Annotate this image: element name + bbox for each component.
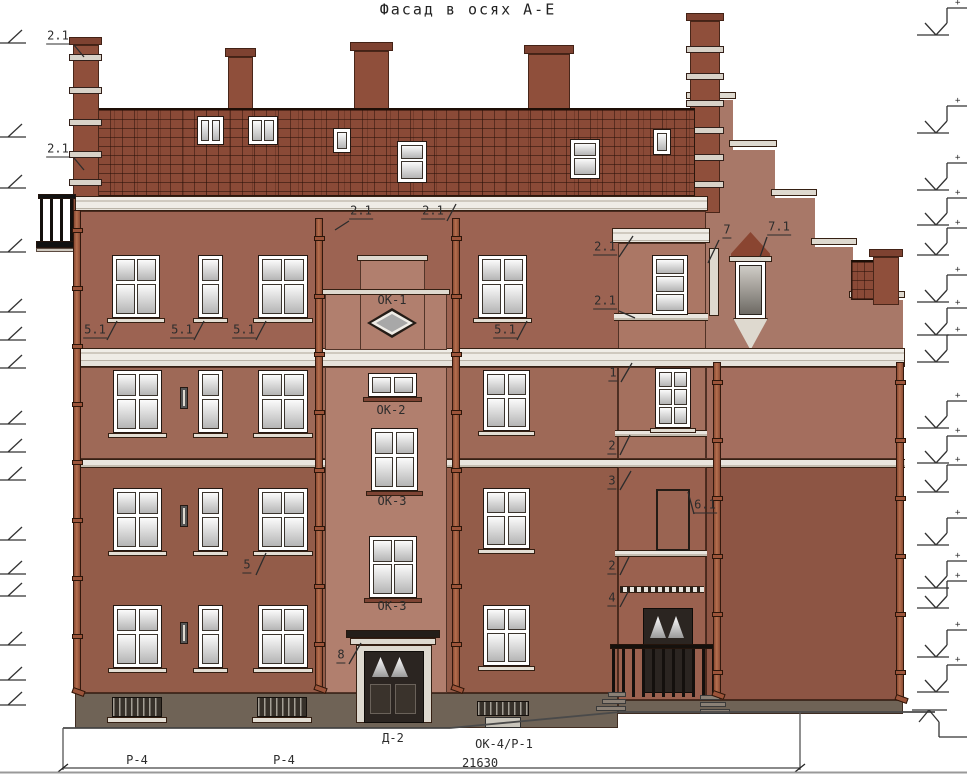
window-pane (482, 284, 501, 315)
window-pane (401, 161, 423, 179)
right-wall-lower (706, 467, 903, 700)
elevation-plus: + (955, 455, 961, 465)
window-pane (262, 634, 282, 665)
window-pane (202, 399, 219, 430)
mansard-roof (85, 108, 695, 196)
right-wall-upper (706, 367, 903, 459)
elevation-mark (917, 665, 967, 692)
window-pane (394, 377, 413, 393)
window-pane (139, 634, 158, 665)
pinnacle-ring (686, 73, 724, 80)
eaves-cornice (75, 196, 708, 211)
window-pane (139, 374, 158, 396)
elevation-mark (917, 465, 967, 492)
basement-grille (257, 697, 307, 717)
elevation-mark (0, 124, 26, 137)
part-label: Д-2 (382, 732, 404, 744)
dimension-tick (58, 764, 805, 772)
stair-step (700, 709, 730, 714)
window-pane (508, 398, 526, 427)
window-pane (396, 432, 414, 454)
downpipe (73, 210, 81, 693)
window-pane (487, 633, 505, 662)
basement-window-ok4 (477, 701, 529, 716)
window-pane (264, 120, 274, 141)
window (113, 370, 162, 433)
elevation-plus: + (955, 508, 961, 518)
callout-label: 8 (336, 649, 345, 664)
downpipe-collar (314, 236, 325, 241)
window-pane (487, 516, 505, 545)
downpipe-collar (451, 468, 462, 473)
window-sill (253, 668, 313, 673)
window-pane (508, 633, 526, 662)
gable-shingle-patch (851, 260, 875, 300)
callout-label: 7 (722, 224, 731, 239)
downpipe-collar (314, 642, 325, 647)
window-pane (394, 540, 413, 562)
main-cornice (75, 348, 905, 367)
elevation-plus: + (955, 96, 961, 106)
downpipe-collar (314, 294, 325, 299)
part-label: Р-4 (273, 754, 295, 766)
elevation-mark (917, 436, 967, 463)
elevation-mark (917, 198, 967, 225)
downpipe-collar (451, 352, 462, 357)
elevation-mark-up (912, 710, 967, 737)
window-pane (262, 284, 282, 315)
elevation-mark (917, 275, 967, 302)
balcony-balusters (40, 199, 74, 241)
elevation-mark (917, 335, 967, 362)
dormer-window (197, 116, 224, 145)
window (198, 605, 223, 668)
left-pinnacle (73, 45, 99, 211)
window-pane (504, 284, 523, 315)
elevation-mark (0, 439, 26, 452)
chimney-cap (524, 45, 574, 54)
window-pane (139, 492, 158, 514)
pinnacle-ring (69, 151, 102, 158)
window (258, 488, 308, 551)
window-pane (284, 284, 304, 315)
downpipe-collar (895, 670, 906, 675)
downpipe-collar (72, 344, 83, 349)
elevation-plus: + (955, 426, 961, 436)
callout-label: 2.1 (421, 205, 445, 220)
window-pane (262, 374, 282, 396)
elevation-mark (917, 228, 967, 255)
window-pane (574, 143, 596, 156)
elevation-plus: + (955, 265, 961, 275)
stair-step (608, 692, 626, 697)
left-pinnacle-cap (69, 37, 102, 45)
window-sill (478, 549, 535, 554)
window-pane (284, 259, 304, 281)
window-sill (363, 397, 422, 402)
window-sill (107, 318, 165, 323)
chimney-cap (225, 48, 256, 57)
dormer-window (248, 116, 278, 145)
downpipe-collar (314, 352, 325, 357)
window-pane (262, 399, 282, 430)
window-pane (201, 120, 209, 141)
elevation-mark (917, 518, 967, 545)
balcony-door (656, 489, 690, 551)
window-sill (193, 668, 228, 673)
elevation-plus: + (955, 655, 961, 665)
grille-sill (252, 717, 312, 723)
callout-label: 2 (607, 440, 616, 455)
window-sill (193, 433, 228, 438)
window-pane (674, 389, 687, 405)
downpipe-collar (72, 228, 83, 233)
part-label: ОК-1 (378, 294, 407, 306)
downpipe-collar (314, 468, 325, 473)
downpipe-collar (451, 584, 462, 589)
window-pane (117, 374, 136, 396)
window-pane (487, 609, 505, 630)
elevation-mark (917, 581, 967, 608)
window-pane (139, 517, 158, 548)
window-pane (284, 492, 304, 514)
callout-label: 2.1 (46, 143, 70, 158)
dimension-text: 21630 (462, 757, 498, 769)
downpipe-collar (451, 410, 462, 415)
window-pane (284, 399, 304, 430)
elevation-mark (0, 327, 26, 340)
window-pane (401, 145, 423, 159)
window-pane (202, 517, 219, 548)
callout-label: 2.1 (593, 295, 617, 310)
window-pane (508, 609, 526, 630)
elevation-plus: + (955, 551, 961, 561)
window-pane (202, 259, 219, 281)
window (483, 605, 530, 666)
part-label: ОК-2 (377, 404, 406, 416)
gable-chimney (873, 257, 899, 305)
callout-label: 2 (607, 560, 616, 575)
pinnacle-ring (69, 54, 102, 61)
elevation-mark (0, 467, 26, 480)
downpipe-collar (712, 438, 723, 443)
pinnacle-ring (69, 119, 102, 126)
bay-side-return (709, 248, 719, 316)
downpipe-collar (712, 554, 723, 559)
downpipe-collar (895, 612, 906, 617)
pinnacle-ring (69, 87, 102, 94)
chimney (354, 51, 389, 110)
window-pane (337, 132, 347, 149)
elevation-mark (0, 583, 26, 596)
window-pane (202, 492, 219, 514)
window-sill (108, 433, 167, 438)
window-pane (674, 372, 687, 387)
window (258, 605, 308, 668)
window-sill (253, 433, 313, 438)
callout-label: 7.1 (767, 221, 791, 236)
gable-chimney-cap (869, 249, 903, 257)
oriel-glass (739, 265, 762, 315)
window-sill (193, 318, 228, 323)
downpipe-collar (451, 526, 462, 531)
downpipe-collar (72, 634, 83, 639)
window-pane (284, 634, 304, 665)
part-label: ОК-3 (378, 495, 407, 507)
plinth-right (618, 700, 903, 714)
bay-window (652, 255, 688, 315)
pinnacle-ring (686, 46, 724, 53)
basement-grille (112, 697, 162, 717)
callout-label: 1 (608, 367, 617, 382)
window-sill (108, 551, 167, 556)
window-pane (508, 374, 526, 395)
elevation-mark (917, 561, 967, 588)
callout-label: 4 (607, 592, 616, 607)
balcony-sill (615, 550, 707, 557)
window-pane (117, 399, 136, 430)
window-pane (252, 120, 262, 141)
window-pane (116, 259, 135, 281)
window-pane (487, 374, 505, 395)
balcony-slab (36, 248, 78, 252)
window-pane (202, 284, 219, 315)
portal-architrave (350, 638, 436, 645)
window-sill (253, 551, 313, 556)
window-pane (487, 492, 505, 513)
page-title: Фасад в осях А-Е (380, 3, 557, 18)
part-label: ОК-3 (378, 600, 407, 612)
window-sill (108, 668, 167, 673)
window-pane (659, 407, 672, 424)
elevation-plus: + (955, 325, 961, 335)
elevation-mark (917, 106, 967, 133)
pinnacle-ring (69, 179, 102, 186)
facade-drawing: Фасад в осях А-Е ++++++++++++++++2.12.12… (0, 0, 967, 775)
part-label: ОК-4/Р-1 (475, 738, 533, 750)
callout-label: 5.1 (232, 324, 256, 339)
pinnacle-ring (686, 100, 724, 107)
chimney (228, 57, 253, 110)
window-pane (656, 294, 684, 311)
bay-top-cornice (612, 228, 710, 243)
window (478, 255, 527, 318)
downpipe-collar (72, 518, 83, 523)
callout-label: 5.1 (83, 324, 107, 339)
door-panel (370, 684, 391, 714)
window-pane (137, 259, 156, 281)
window-pane (137, 284, 156, 315)
portal-head (346, 630, 440, 638)
elevation-plus: + (955, 391, 961, 401)
elevation-mark (0, 355, 26, 368)
window-pane (284, 374, 304, 396)
window-ok2 (368, 373, 417, 397)
gable-step-coping (729, 140, 777, 147)
window-pane (373, 564, 392, 594)
downpipe-collar (895, 438, 906, 443)
gable-step-coping (771, 189, 817, 196)
elevation-mark (0, 411, 26, 424)
bay-window (655, 368, 691, 428)
window-pane (482, 259, 501, 281)
window-pane (375, 457, 393, 488)
callout-label: 6.1 (693, 499, 717, 514)
downpipe-collar (712, 670, 723, 675)
window (258, 255, 308, 318)
window-pane (139, 609, 158, 631)
window (198, 370, 223, 433)
window-pane (262, 492, 282, 514)
downpipe (713, 362, 721, 696)
window-pane (284, 517, 304, 548)
callout-label: 2.1 (349, 205, 373, 220)
right-pinnacle-cap (686, 13, 724, 21)
window (112, 255, 160, 318)
window-pane (117, 609, 136, 631)
elevation-mark (917, 308, 967, 335)
dormer-window (570, 139, 600, 179)
window-pane (117, 492, 136, 514)
string-course (75, 459, 325, 468)
elevation-mark (917, 163, 967, 190)
downpipe-collar (451, 294, 462, 299)
window-sill (253, 318, 313, 323)
window-pane (656, 259, 684, 274)
dentil-band (620, 586, 704, 593)
callout-label: 2.1 (593, 241, 617, 256)
callout-label: 5.1 (493, 324, 517, 339)
elevation-mark (917, 401, 967, 428)
window-ok3 (371, 428, 418, 491)
window-pane (117, 517, 136, 548)
window-pane (116, 284, 135, 315)
downpipe-collar (72, 576, 83, 581)
window (483, 370, 530, 431)
window-pane (659, 389, 672, 405)
dormer-window (333, 128, 351, 153)
oriel-window (735, 261, 766, 319)
elevation-plus: + (955, 0, 961, 8)
elevation-mark (0, 561, 26, 574)
elevation-plus: + (955, 188, 961, 198)
window-pane (504, 259, 523, 281)
balcony-base (36, 241, 78, 248)
window (198, 255, 223, 318)
downpipe-collar (895, 554, 906, 559)
window-pane (659, 372, 672, 387)
window-pane (202, 634, 219, 665)
wall-slit (180, 505, 188, 527)
window-pane (674, 407, 687, 424)
window-pane (487, 398, 505, 427)
window-pane (373, 540, 392, 562)
window (113, 605, 162, 668)
window-pane (657, 133, 667, 151)
stair-step (596, 706, 626, 711)
downpipe (896, 362, 904, 700)
window-pane (262, 609, 282, 631)
elevation-plus: + (955, 620, 961, 630)
window-pane (372, 377, 391, 393)
elevation-plus: + (955, 218, 961, 228)
downpipe-collar (451, 642, 462, 647)
elevation-mark (917, 630, 967, 657)
dormer-window (653, 129, 671, 155)
wall-slit (180, 387, 188, 409)
downpipe-collar (72, 286, 83, 291)
window-sill (650, 428, 696, 433)
light-well (485, 717, 521, 728)
window-pane (202, 609, 219, 631)
chimney-cap (350, 42, 393, 51)
downpipe-collar (314, 410, 325, 415)
downpipe-collar (895, 380, 906, 385)
window-pane (574, 158, 596, 175)
window (258, 370, 308, 433)
downpipe (452, 218, 460, 690)
downpipe-collar (895, 496, 906, 501)
downpipe-collar (314, 584, 325, 589)
elevation-mark (0, 632, 26, 645)
window-pane (508, 516, 526, 545)
downpipe-collar (314, 526, 325, 531)
window-sill (193, 551, 228, 556)
downpipe-collar (712, 612, 723, 617)
elevation-plus: + (955, 571, 961, 581)
window-sill (478, 666, 535, 671)
window-pane (139, 399, 158, 430)
window-pane (394, 564, 413, 594)
downpipe (315, 218, 323, 690)
elevation-mark (0, 692, 26, 705)
elevation-plus: + (955, 298, 961, 308)
tower-coping (357, 255, 428, 261)
elevation-plus: + (955, 153, 961, 163)
window-pane (508, 492, 526, 513)
window-pane (262, 517, 282, 548)
stair-railing-balusters (612, 649, 716, 697)
door-panel (395, 684, 416, 714)
window (198, 488, 223, 551)
window-pane (212, 120, 220, 141)
window (483, 488, 530, 549)
window-pane (117, 634, 136, 665)
window-ok3 (369, 536, 417, 598)
downpipe-collar (712, 380, 723, 385)
downpipe-collar (72, 402, 83, 407)
window-pane (262, 259, 282, 281)
elevation-mark (0, 667, 26, 680)
chimney (528, 54, 570, 110)
downpipe-collar (72, 460, 83, 465)
stair-step (700, 702, 726, 707)
wall-slit (180, 622, 188, 644)
window-pane (656, 276, 684, 292)
window-sill (478, 431, 535, 436)
callout-label: 2.1 (46, 30, 70, 45)
part-label: Р-4 (126, 754, 148, 766)
elevation-mark (0, 239, 26, 252)
callout-label: 3 (607, 475, 616, 490)
elevation-mark (0, 299, 26, 312)
dormer-window (397, 141, 427, 183)
stair-step (602, 699, 626, 704)
gable-step-coping (811, 238, 857, 245)
grille-sill (107, 717, 167, 723)
window-pane (284, 609, 304, 631)
window-pane (375, 432, 393, 454)
